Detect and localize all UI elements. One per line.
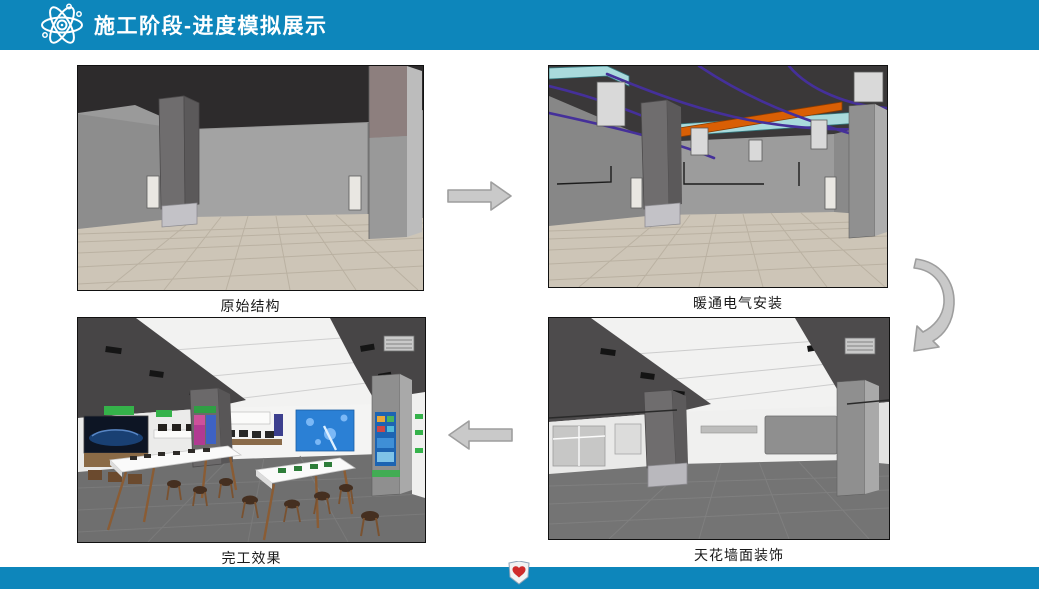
slide-header: 施工阶段-进度模拟展示 xyxy=(0,0,1039,50)
arrow-right-icon xyxy=(447,179,513,213)
arrow-left-icon xyxy=(447,418,513,452)
stage-original-structure: 原始结构 xyxy=(77,65,424,316)
render-original-structure xyxy=(77,65,424,291)
shield-heart-logo-icon xyxy=(506,561,532,585)
render-hvac-electrical xyxy=(548,65,888,288)
arrow-curved-down-icon xyxy=(906,257,958,353)
stage-caption-hvac-electrical: 暖通电气安装 xyxy=(568,293,908,313)
render-finished-effect xyxy=(77,317,426,543)
page-title: 施工阶段-进度模拟展示 xyxy=(94,10,328,40)
render-ceiling-wall-decoration xyxy=(548,317,890,540)
slide-canvas: 施工阶段-进度模拟展示 xyxy=(0,0,1039,589)
stage-caption-ceiling-wall-decoration: 天花墙面装饰 xyxy=(568,545,910,565)
stage-caption-original-structure: 原始结构 xyxy=(77,296,424,316)
stage-caption-finished-effect: 完工效果 xyxy=(77,548,426,568)
stage-hvac-electrical: 暖通电气安装 xyxy=(548,65,888,313)
atom-icon xyxy=(39,3,85,47)
stage-finished-effect: 完工效果 xyxy=(77,317,426,568)
stage-ceiling-wall-decoration: 天花墙面装饰 xyxy=(548,317,890,565)
